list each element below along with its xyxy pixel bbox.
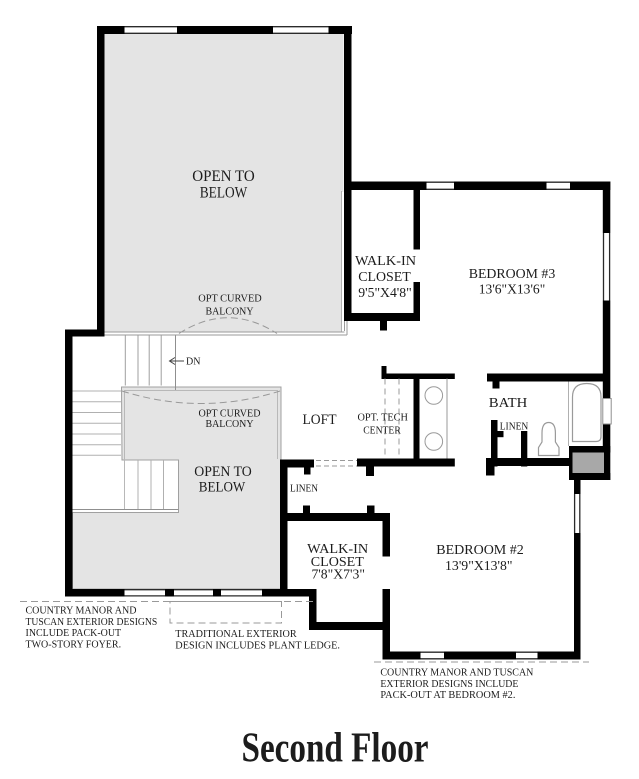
svg-text:BELOW: BELOW xyxy=(199,480,246,496)
svg-text:TWO-STORY FOYER.: TWO-STORY FOYER. xyxy=(26,639,122,650)
svg-text:WALK-IN: WALK-IN xyxy=(355,254,416,269)
svg-text:13'9"X13'8": 13'9"X13'8" xyxy=(445,559,513,574)
svg-text:CENTER: CENTER xyxy=(363,425,401,437)
svg-text:BEDROOM #3: BEDROOM #3 xyxy=(469,267,556,282)
svg-text:PACK-OUT AT BEDROOM #2.: PACK-OUT AT BEDROOM #2. xyxy=(380,690,515,701)
svg-text:OPEN TO: OPEN TO xyxy=(194,464,252,480)
svg-text:BATH: BATH xyxy=(489,396,528,411)
svg-text:EXTERIOR DESIGNS INCLUDE: EXTERIOR DESIGNS INCLUDE xyxy=(380,679,518,690)
svg-text:OPEN TO: OPEN TO xyxy=(192,168,255,185)
svg-text:TRADITIONAL EXTERIOR: TRADITIONAL EXTERIOR xyxy=(175,629,296,640)
svg-text:OPT CURVED: OPT CURVED xyxy=(198,293,262,305)
svg-text:DESIGN INCLUDES PLANT LEDGE.: DESIGN INCLUDES PLANT LEDGE. xyxy=(175,640,340,651)
svg-text:BEDROOM #2: BEDROOM #2 xyxy=(436,543,524,558)
svg-text:BALCONY: BALCONY xyxy=(206,306,254,318)
svg-text:Second Floor: Second Floor xyxy=(242,726,429,772)
svg-text:COUNTRY MANOR AND TUSCAN: COUNTRY MANOR AND TUSCAN xyxy=(380,668,533,679)
svg-text:COUNTRY MANOR AND: COUNTRY MANOR AND xyxy=(26,606,137,617)
svg-text:TUSCAN EXTERIOR DESIGNS: TUSCAN EXTERIOR DESIGNS xyxy=(26,617,158,628)
svg-text:LOFT: LOFT xyxy=(303,412,337,428)
svg-text:OPT. TECH: OPT. TECH xyxy=(357,412,408,424)
svg-text:INCLUDE PACK-OUT: INCLUDE PACK-OUT xyxy=(26,628,122,639)
svg-text:BELOW: BELOW xyxy=(200,185,248,202)
svg-text:CLOSET: CLOSET xyxy=(358,270,411,285)
svg-text:9'5"X4'8": 9'5"X4'8" xyxy=(358,286,412,301)
svg-text:13'6"X13'6": 13'6"X13'6" xyxy=(479,283,546,298)
svg-text:LINEN: LINEN xyxy=(500,422,529,433)
svg-text:BALCONY: BALCONY xyxy=(206,418,254,430)
svg-text:LINEN: LINEN xyxy=(290,484,318,495)
svg-text:DN: DN xyxy=(186,357,200,368)
svg-text:7'8"X7'3": 7'8"X7'3" xyxy=(311,568,365,583)
